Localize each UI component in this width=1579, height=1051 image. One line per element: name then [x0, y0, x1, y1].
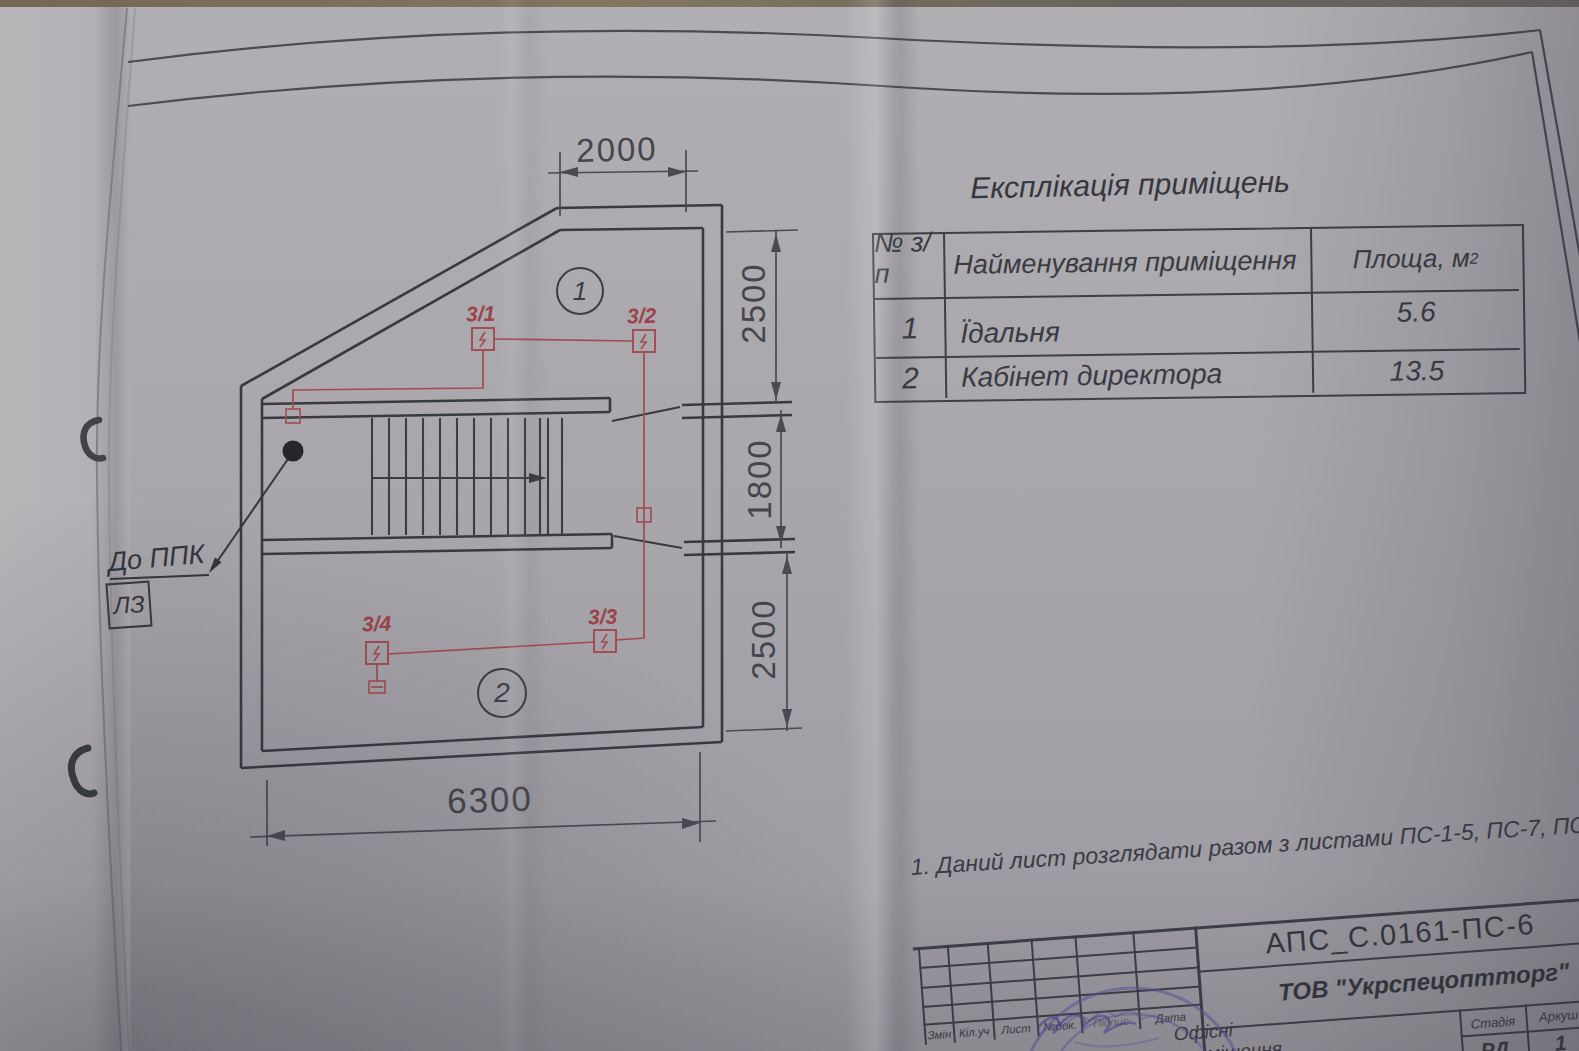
dim-right-bottom: 2500 — [745, 574, 779, 704]
rev-col-label: Кіл.уч — [958, 1025, 990, 1039]
room-2-label: 2 — [494, 677, 510, 709]
rev-col-label: №док. — [1043, 1019, 1078, 1033]
company-name-value: ТОВ "Укрспецоптторг" — [1277, 957, 1570, 1006]
grid-line — [921, 967, 1199, 989]
alarm-wiring — [293, 339, 644, 681]
col-header-area-label: Площа, м — [1352, 243, 1470, 276]
row2-name: Кабінет директора — [947, 353, 1315, 398]
row1-name: Їдальня — [946, 294, 1314, 358]
row2-num-value: 2 — [902, 361, 919, 395]
explication-title: Експлікація приміщень — [948, 164, 1313, 206]
row2-area: 13.5 — [1314, 350, 1521, 393]
object-name: Офісні приміщення — [1174, 1020, 1343, 1051]
stage-value-text: РД — [1480, 1037, 1510, 1051]
rev-col-lyst: Лист — [993, 1018, 1038, 1039]
sheet-value: 1 — [1527, 1026, 1579, 1051]
rev-col-label: Лист — [1001, 1022, 1031, 1036]
explication-table: № з/п Найменування приміщення Площа, м2 … — [872, 224, 1526, 403]
row1-num-value: 1 — [901, 311, 918, 345]
dimension-arrows — [267, 167, 792, 841]
page-crease-lines — [97, 8, 135, 1051]
dimension-lines — [250, 150, 802, 846]
room-1-label: 1 — [573, 276, 587, 307]
detector-label-3-1: 3/1 — [466, 301, 496, 326]
loop-label-box: ЛЗ — [105, 581, 152, 630]
wiring-connector-icon — [286, 409, 651, 693]
col-header-num-label: № з/п — [874, 227, 944, 290]
door-leaves — [612, 407, 682, 548]
dim-bottom: 6300 — [419, 778, 560, 822]
col-header-area: Площа, м2 — [1312, 226, 1519, 294]
col-header-name-label: Найменування приміщення — [953, 245, 1297, 281]
col-header-num: № з/п — [874, 234, 946, 300]
staircase — [372, 418, 562, 535]
row1-num: 1 — [875, 299, 947, 359]
area-superscript: 2 — [1470, 249, 1479, 267]
row2-num: 2 — [876, 358, 948, 399]
stair-direction-arrow — [529, 473, 547, 483]
rev-col-label: Змін — [927, 1028, 952, 1042]
rev-col-label: Підпис — [1093, 1015, 1130, 1030]
junction-dot — [283, 441, 304, 462]
desk-edge-strip — [0, 0, 1579, 7]
row1-area-value: 5.6 — [1396, 296, 1435, 329]
row2-name-value: Кабінет директора — [961, 358, 1223, 394]
rev-col-pidpys: Підпис — [1081, 1011, 1140, 1033]
room-number-2: 2 — [477, 668, 527, 718]
dim-right-top: 2500 — [735, 238, 769, 368]
rev-col-kiluch: Кіл.уч — [954, 1022, 995, 1043]
dim-right-middle: 1800 — [741, 414, 775, 544]
sheet-header: Аркуш — [1525, 1002, 1579, 1029]
leader-label: До ППК — [107, 539, 206, 578]
detector-label-3-4: 3/4 — [362, 611, 392, 636]
grid-line — [922, 985, 1200, 1007]
grid-line — [919, 947, 1197, 969]
stage-header-label: Стадія — [1470, 1013, 1515, 1031]
dim-top: 2000 — [552, 129, 683, 170]
rev-col-ndok: №док. — [1037, 1015, 1082, 1036]
row1-area: 5.6 — [1313, 291, 1520, 353]
detector-label-3-2: 3/2 — [627, 303, 657, 328]
sheet-value-text: 1 — [1554, 1031, 1567, 1051]
rev-col-zmin: Змін — [924, 1025, 955, 1045]
loop-label: ЛЗ — [112, 590, 145, 620]
col-header-name: Найменування приміщення — [945, 229, 1313, 299]
doc-code-value: АПС_С.0161-ПС-6 — [1264, 907, 1536, 960]
detector-label-3-3: 3/3 — [588, 604, 618, 629]
photo-of-drawing-sheet: 2000 2500 1800 2500 6300 1 2 3/1 3/2 3/3… — [0, 0, 1579, 1051]
row1-name-value: Їдальня — [960, 316, 1060, 349]
row2-area-value: 13.5 — [1390, 355, 1445, 388]
binder-hook-icon — [71, 420, 103, 794]
room-number-1: 1 — [556, 267, 604, 315]
leader-arrowhead — [209, 558, 222, 573]
sheet-header-label: Аркуш — [1538, 1006, 1578, 1024]
